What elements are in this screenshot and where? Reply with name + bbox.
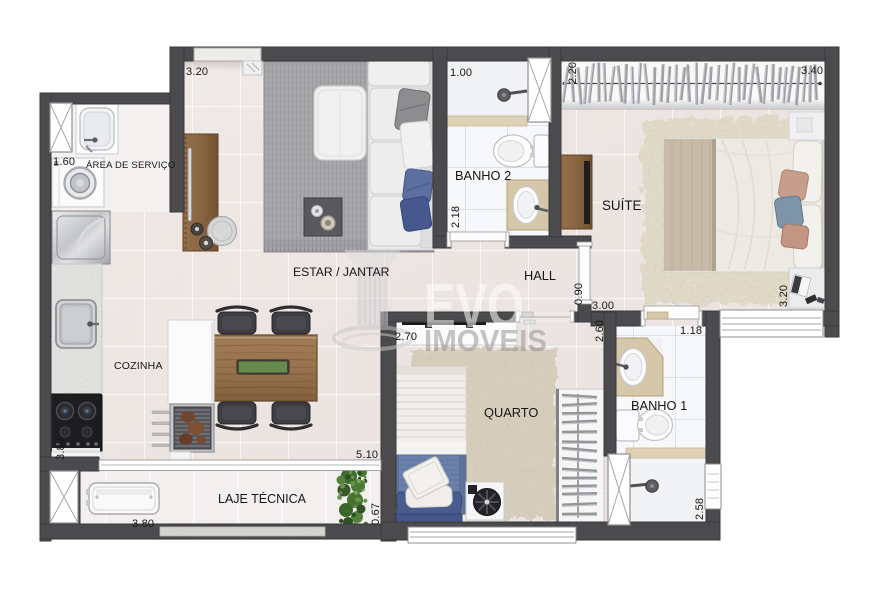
svg-text:SUÍTE: SUÍTE bbox=[602, 198, 642, 213]
svg-text:3.89: 3.89 bbox=[55, 438, 67, 460]
svg-text:1.60: 1.60 bbox=[53, 156, 75, 168]
svg-text:BANHO 2: BANHO 2 bbox=[455, 168, 511, 183]
svg-text:ESTAR / JANTAR: ESTAR / JANTAR bbox=[293, 265, 390, 279]
svg-text:3.80: 3.80 bbox=[132, 518, 154, 530]
svg-text:2.70: 2.70 bbox=[395, 331, 417, 343]
svg-text:IMÓVEIS: IMÓVEIS bbox=[424, 322, 547, 358]
svg-text:0.67: 0.67 bbox=[370, 503, 382, 525]
svg-text:QUARTO: QUARTO bbox=[484, 405, 538, 420]
svg-text:2.18: 2.18 bbox=[450, 206, 462, 228]
svg-text:2.60: 2.60 bbox=[594, 320, 606, 342]
svg-text:ÁREA DE SERVIÇO: ÁREA DE SERVIÇO bbox=[86, 160, 175, 171]
svg-text:BANHO 1: BANHO 1 bbox=[631, 398, 687, 413]
svg-text:COZINHA: COZINHA bbox=[114, 360, 163, 372]
svg-text:LAJE TÉCNICA: LAJE TÉCNICA bbox=[218, 491, 307, 506]
svg-text:3.40: 3.40 bbox=[801, 65, 823, 77]
svg-text:2.20: 2.20 bbox=[567, 62, 579, 84]
svg-text:1.18: 1.18 bbox=[680, 325, 702, 337]
svg-text:2.58: 2.58 bbox=[694, 498, 706, 520]
svg-text:1.00: 1.00 bbox=[450, 67, 472, 79]
svg-text:0.90: 0.90 bbox=[573, 283, 585, 305]
svg-text:3.20: 3.20 bbox=[186, 66, 208, 78]
svg-text:3.00: 3.00 bbox=[592, 300, 614, 312]
svg-text:HALL: HALL bbox=[524, 268, 556, 283]
svg-text:5.10: 5.10 bbox=[356, 449, 378, 461]
svg-text:3.20: 3.20 bbox=[778, 285, 790, 307]
